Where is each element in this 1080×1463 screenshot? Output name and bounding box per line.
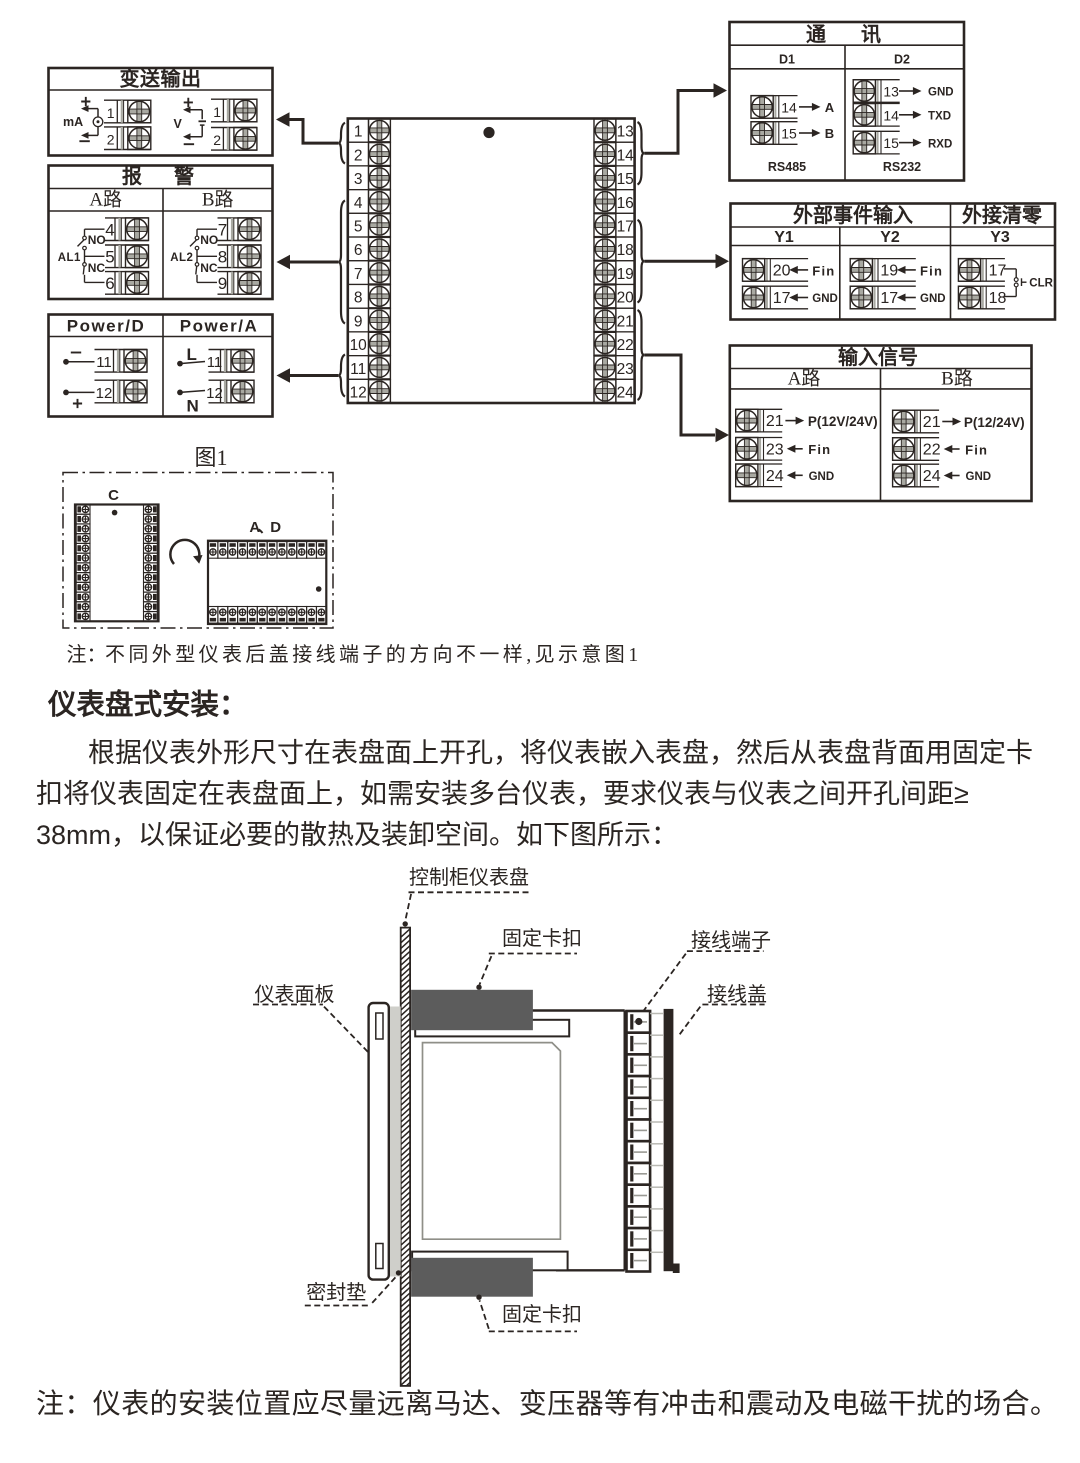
svg-text:15: 15 (883, 135, 899, 151)
svg-text:GND: GND (920, 293, 946, 305)
svg-text:11: 11 (96, 354, 112, 371)
svg-text:固定卡扣: 固定卡扣 (502, 927, 582, 950)
svg-text:NO: NO (200, 233, 218, 247)
svg-text:24: 24 (766, 468, 784, 485)
svg-text:B路: B路 (941, 368, 973, 390)
svg-text:17: 17 (773, 290, 791, 307)
svg-text:38mm，以保证必要的散热及装卸空间。如下图所示：: 38mm，以保证必要的散热及装卸空间。如下图所示： (36, 820, 678, 850)
svg-text:7: 7 (218, 221, 227, 240)
svg-text:13: 13 (617, 124, 634, 141)
svg-text:仪表面板: 仪表面板 (255, 983, 335, 1006)
svg-text:RXD: RXD (928, 139, 952, 151)
svg-text:4: 4 (105, 221, 114, 240)
svg-text:根据仪表外形尺寸在表盘面上开孔，将仪表嵌入表盘，然后从表盘背: 根据仪表外形尺寸在表盘面上开孔，将仪表嵌入表盘，然后从表盘背面用固定卡 (88, 738, 1033, 768)
svg-text:RS485: RS485 (768, 160, 806, 174)
svg-text:警: 警 (174, 164, 194, 188)
svg-text:2: 2 (107, 132, 115, 148)
svg-text:接线盖: 接线盖 (707, 983, 767, 1006)
svg-text:18: 18 (617, 242, 634, 259)
svg-text:AL1: AL1 (58, 252, 81, 264)
svg-text:7: 7 (354, 266, 363, 283)
svg-text:14: 14 (617, 147, 635, 164)
svg-text:5: 5 (105, 248, 114, 267)
svg-text:D2: D2 (894, 53, 910, 67)
svg-text:9: 9 (354, 313, 363, 330)
svg-text:12: 12 (350, 385, 367, 402)
svg-text:C: C (108, 487, 119, 504)
svg-text:Power/D: Power/D (67, 317, 146, 336)
svg-text:接线端子: 接线端子 (691, 929, 771, 952)
svg-text:24: 24 (617, 385, 635, 402)
svg-text:外部事件输入: 外部事件输入 (793, 203, 913, 227)
svg-text:1: 1 (354, 124, 363, 141)
svg-text:Fin: Fin (920, 264, 943, 279)
svg-text:AL2: AL2 (170, 252, 193, 264)
svg-text:不同外型仪表后盖接线端子的方向不一样,见示意图1: 不同外型仪表后盖接线端子的方向不一样,见示意图1 (105, 643, 642, 666)
svg-text:通: 通 (806, 23, 826, 46)
svg-text:讯: 讯 (861, 23, 881, 46)
svg-text:6: 6 (354, 242, 363, 259)
svg-text:P(12V/24V): P(12V/24V) (808, 414, 878, 429)
svg-text:3: 3 (354, 171, 363, 188)
svg-text:11: 11 (350, 361, 366, 378)
svg-text:21: 21 (923, 414, 941, 431)
svg-text:V: V (174, 117, 183, 131)
svg-text:N: N (187, 397, 199, 416)
svg-text:mA: mA (63, 115, 83, 129)
svg-text:14: 14 (781, 99, 797, 115)
svg-text:12: 12 (206, 385, 223, 402)
svg-text:NC: NC (88, 261, 106, 275)
svg-text:1: 1 (213, 104, 221, 120)
svg-text:B: B (825, 126, 834, 141)
svg-text:外接清零: 外接清零 (962, 203, 1043, 227)
svg-text:18: 18 (989, 290, 1007, 307)
svg-text:2: 2 (213, 132, 221, 148)
svg-text:Y1: Y1 (774, 229, 794, 246)
svg-text:密封垫: 密封垫 (306, 1281, 366, 1304)
svg-text:GND: GND (812, 293, 838, 305)
svg-text:9: 9 (218, 274, 227, 293)
svg-text:21: 21 (766, 413, 784, 430)
svg-text:23: 23 (617, 361, 634, 378)
svg-text:注：仪表的安装位置应尽量远离马达、变压器等有冲击和震动及电磁: 注：仪表的安装位置应尽量远离马达、变压器等有冲击和震动及电磁干扰的场合。 (36, 1388, 1058, 1419)
svg-text:GND: GND (966, 471, 992, 483)
svg-text:19: 19 (880, 262, 898, 279)
svg-text:22: 22 (923, 442, 941, 459)
svg-text:11: 11 (207, 354, 223, 371)
svg-text:RS232: RS232 (883, 160, 921, 174)
svg-text:15: 15 (617, 171, 634, 188)
svg-text:20: 20 (617, 290, 635, 307)
svg-text:GND: GND (928, 87, 954, 99)
svg-text:A路: A路 (788, 368, 821, 390)
svg-text:17: 17 (617, 219, 634, 236)
svg-text:A: A (825, 100, 835, 115)
svg-text:8: 8 (354, 290, 363, 307)
svg-text:16: 16 (617, 195, 634, 212)
svg-text:Fin: Fin (812, 264, 835, 279)
svg-text:20: 20 (773, 262, 791, 279)
svg-text:仪表盘式安装：: 仪表盘式安装： (47, 688, 248, 721)
svg-text:图1: 图1 (194, 445, 227, 470)
svg-text:13: 13 (883, 84, 899, 100)
svg-text:固定卡扣: 固定卡扣 (502, 1303, 582, 1326)
svg-text:Power/A: Power/A (180, 317, 259, 336)
svg-text:扣将仪表固定在表盘面上，如需安装多台仪表，要求仪表与仪表之间: 扣将仪表固定在表盘面上，如需安装多台仪表，要求仪表与仪表之间开孔间距≥ (36, 779, 969, 809)
svg-text:6: 6 (105, 274, 114, 293)
svg-text:24: 24 (923, 468, 941, 485)
svg-text:19: 19 (617, 266, 634, 283)
svg-text:14: 14 (883, 107, 899, 123)
svg-text:Y2: Y2 (880, 229, 900, 246)
svg-text:B路: B路 (202, 189, 234, 211)
svg-text:1: 1 (107, 105, 115, 121)
svg-text:15: 15 (781, 126, 797, 142)
svg-text:17: 17 (989, 262, 1007, 279)
svg-text:4: 4 (354, 195, 363, 212)
svg-text:21: 21 (617, 313, 634, 330)
svg-text:23: 23 (766, 441, 784, 458)
svg-text:NC: NC (200, 261, 218, 275)
svg-text:变送输出: 变送输出 (120, 67, 202, 91)
svg-text:控制柜仪表盘: 控制柜仪表盘 (409, 866, 529, 889)
svg-text:5: 5 (354, 219, 363, 236)
svg-text:报: 报 (122, 164, 142, 188)
svg-text:D1: D1 (779, 53, 795, 67)
svg-text:TXD: TXD (928, 111, 951, 123)
svg-text:12: 12 (96, 385, 113, 402)
svg-text:A、D: A、D (249, 519, 281, 536)
svg-text:P(12/24V): P(12/24V) (964, 415, 1025, 430)
svg-text:输入信号: 输入信号 (838, 345, 918, 369)
svg-text:Fin: Fin (808, 442, 831, 457)
svg-text:22: 22 (617, 337, 634, 354)
svg-text:A路: A路 (89, 189, 122, 211)
svg-text:GND: GND (809, 471, 835, 483)
svg-text:Fin: Fin (965, 443, 988, 458)
svg-text:注：: 注： (67, 643, 107, 666)
svg-text:8: 8 (218, 248, 227, 267)
svg-text:L: L (187, 345, 197, 364)
svg-text:2: 2 (354, 147, 363, 164)
svg-text:17: 17 (880, 290, 898, 307)
svg-text:CLR: CLR (1029, 278, 1053, 290)
svg-text:10: 10 (350, 337, 368, 354)
svg-text:Y3: Y3 (990, 229, 1010, 246)
svg-text:NO: NO (88, 233, 106, 247)
